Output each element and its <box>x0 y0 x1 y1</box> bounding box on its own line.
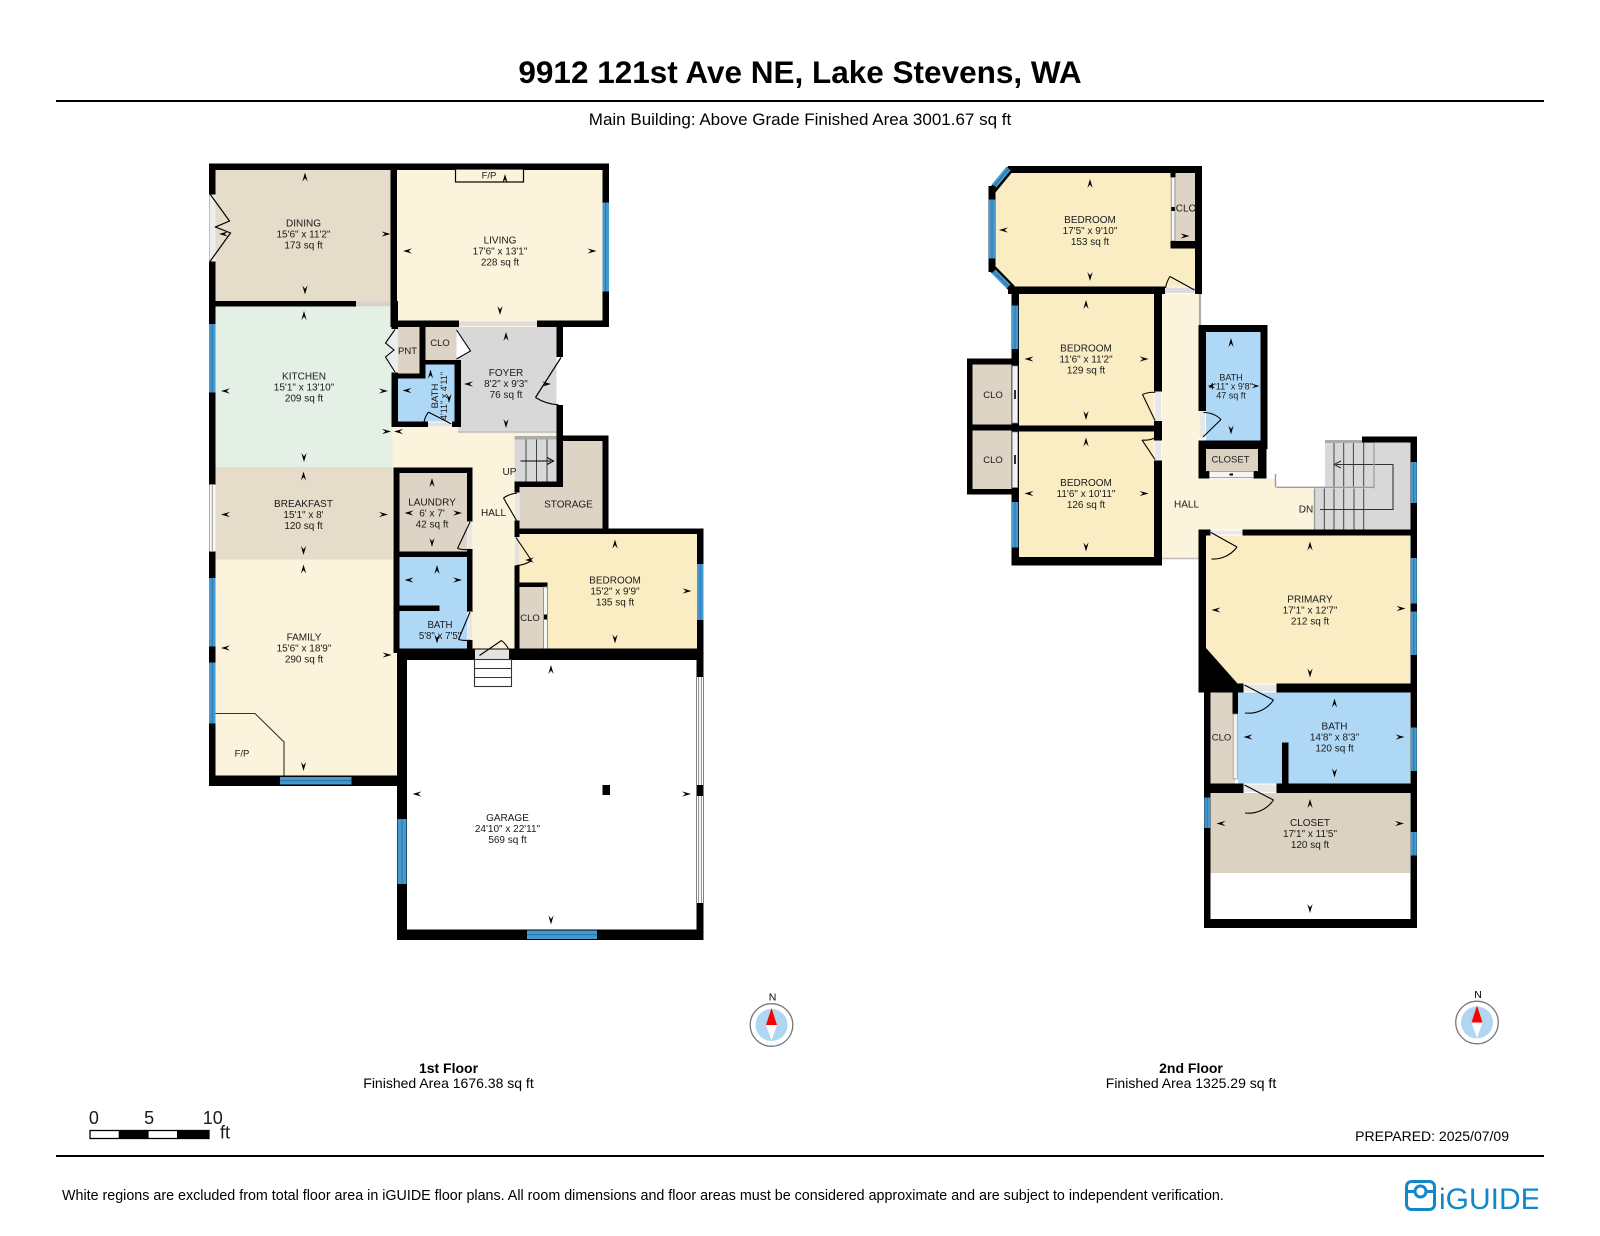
svg-text:173 sq ft: 173 sq ft <box>284 241 323 252</box>
svg-text:15'1" x 13'10": 15'1" x 13'10" <box>274 383 335 394</box>
svg-text:228 sq ft: 228 sq ft <box>481 258 520 269</box>
svg-text:135 sq ft: 135 sq ft <box>596 598 635 609</box>
svg-text:17'6" x 13'1": 17'6" x 13'1" <box>473 247 528 258</box>
svg-text:HALL: HALL <box>1174 500 1199 511</box>
svg-text:120 sq ft: 120 sq ft <box>1291 840 1330 851</box>
svg-text:209 sq ft: 209 sq ft <box>285 394 324 405</box>
svg-text:LAUNDRY: LAUNDRY <box>408 498 456 509</box>
svg-text:17'1" x 12'7": 17'1" x 12'7" <box>1283 606 1338 617</box>
svg-text:24'10" x 22'11": 24'10" x 22'11" <box>475 824 541 835</box>
svg-text:UP: UP <box>503 467 517 478</box>
svg-text:HALL: HALL <box>481 508 506 519</box>
svg-text:15'6" x 18'9": 15'6" x 18'9" <box>277 644 332 655</box>
svg-text:5'8" x 7'5": 5'8" x 7'5" <box>419 631 462 642</box>
svg-text:126 sq ft: 126 sq ft <box>1067 500 1106 511</box>
svg-text:120 sq ft: 120 sq ft <box>1315 744 1354 755</box>
svg-text:CLO: CLO <box>1176 203 1197 214</box>
svg-text:GARAGE: GARAGE <box>486 813 529 824</box>
svg-text:DN: DN <box>1299 505 1313 516</box>
svg-text:N: N <box>769 992 777 1004</box>
svg-text:BATH: BATH <box>1322 722 1348 733</box>
svg-text:CLO: CLO <box>520 613 540 624</box>
svg-text:5: 5 <box>144 1108 154 1128</box>
svg-text:F/P: F/P <box>482 171 497 182</box>
svg-text:0: 0 <box>89 1108 99 1128</box>
svg-text:290 sq ft: 290 sq ft <box>285 655 324 666</box>
svg-text:CLOSET: CLOSET <box>1290 818 1330 829</box>
svg-text:129 sq ft: 129 sq ft <box>1067 366 1106 377</box>
svg-text:15'1" x 8': 15'1" x 8' <box>283 510 323 521</box>
svg-text:153 sq ft: 153 sq ft <box>1071 237 1110 248</box>
svg-text:BATH: BATH <box>427 620 452 631</box>
svg-text:KITCHEN: KITCHEN <box>282 372 326 383</box>
svg-text:15'6" x 11'2": 15'6" x 11'2" <box>276 230 331 241</box>
svg-text:15'2" x 9'9": 15'2" x 9'9" <box>590 587 640 598</box>
svg-text:BEDROOM: BEDROOM <box>1060 344 1112 355</box>
svg-text:STORAGE: STORAGE <box>544 500 593 511</box>
svg-text:47 sq ft: 47 sq ft <box>1216 391 1246 401</box>
svg-text:FOYER: FOYER <box>489 368 523 379</box>
svg-text:76 sq ft: 76 sq ft <box>490 390 523 401</box>
svg-text:FAMILY: FAMILY <box>287 633 322 644</box>
svg-text:17'5" x 9'10": 17'5" x 9'10" <box>1063 226 1118 237</box>
svg-text:CLOSET: CLOSET <box>1211 455 1249 466</box>
svg-text:11'6" x 11'2": 11'6" x 11'2" <box>1059 355 1113 366</box>
svg-text:BEDROOM: BEDROOM <box>1064 215 1116 226</box>
svg-text:11'6" x 10'11": 11'6" x 10'11" <box>1057 489 1116 500</box>
svg-text:CLO: CLO <box>983 390 1003 401</box>
svg-text:CLO: CLO <box>983 455 1003 466</box>
svg-text:BREAKFAST: BREAKFAST <box>274 499 333 510</box>
svg-text:BEDROOM: BEDROOM <box>589 576 641 587</box>
svg-text:8'2" x 9'3": 8'2" x 9'3" <box>484 379 528 390</box>
svg-text:CLO: CLO <box>430 338 450 349</box>
svg-text:14'8" x 8'3": 14'8" x 8'3" <box>1310 733 1360 744</box>
svg-text:17'1" x 11'5": 17'1" x 11'5" <box>1283 829 1338 840</box>
svg-text:iGUIDE: iGUIDE <box>1439 1183 1538 1214</box>
svg-text:212 sq ft: 212 sq ft <box>1291 617 1330 628</box>
svg-text:6' x 7': 6' x 7' <box>419 509 445 520</box>
svg-text:BEDROOM: BEDROOM <box>1060 478 1112 489</box>
svg-text:CLO: CLO <box>1212 733 1232 744</box>
svg-text:120 sq ft: 120 sq ft <box>284 521 323 532</box>
svg-text:F/P: F/P <box>235 749 250 760</box>
svg-text:569 sq ft: 569 sq ft <box>488 835 527 846</box>
svg-text:42 sq ft: 42 sq ft <box>416 520 449 531</box>
svg-text:DINING: DINING <box>286 219 321 230</box>
svg-text:LIVING: LIVING <box>484 236 517 247</box>
svg-text:PNT: PNT <box>398 346 417 357</box>
svg-text:N: N <box>1474 989 1482 1001</box>
svg-text:ft: ft <box>220 1123 230 1143</box>
svg-text:PRIMARY: PRIMARY <box>1287 595 1333 606</box>
